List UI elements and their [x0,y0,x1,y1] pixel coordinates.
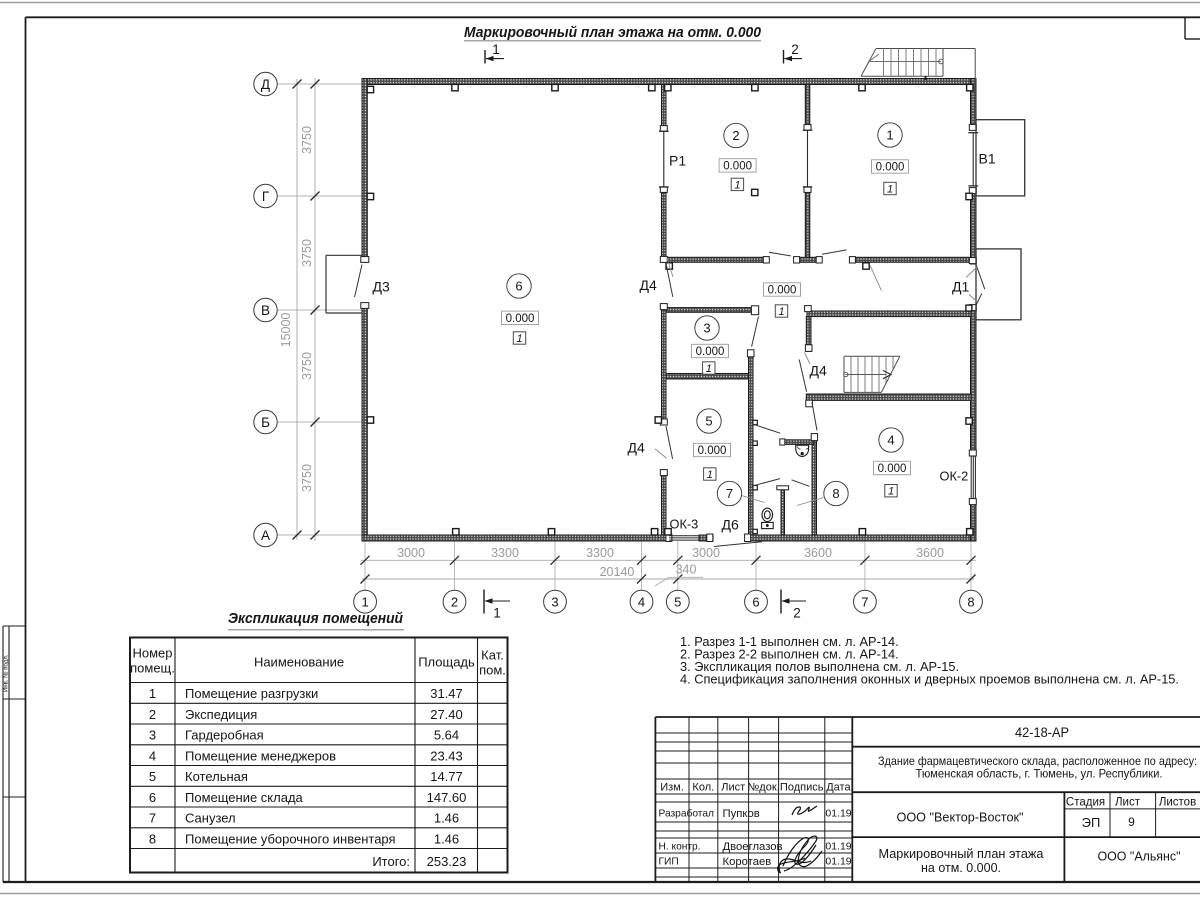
svg-text:3750: 3750 [300,239,314,267]
svg-text:Н. контр.: Н. контр. [659,842,701,853]
svg-text:2: 2 [732,128,739,143]
svg-text:5: 5 [149,769,156,784]
svg-text:Двоеглазов: Двоеглазов [723,841,783,853]
svg-text:Дата: Дата [826,782,851,794]
svg-text:7: 7 [726,486,733,501]
svg-text:1: 1 [492,42,500,57]
svg-text:ЭП: ЭП [1082,815,1101,830]
svg-text:7: 7 [149,811,156,826]
svg-text:3750: 3750 [300,126,314,154]
svg-text:Д4: Д4 [640,277,657,293]
svg-text:В1: В1 [979,151,996,167]
svg-text:Наименование: Наименование [254,655,344,670]
svg-text:0.000: 0.000 [698,445,727,457]
svg-text:0.000: 0.000 [696,346,725,358]
svg-text:Маркировочный план этажа: Маркировочный план этажа [879,846,1045,861]
svg-text:1: 1 [886,128,893,143]
svg-text:Гардеробная: Гардеробная [185,728,264,743]
svg-text:147.60: 147.60 [427,790,467,805]
svg-text:253.23: 253.23 [427,854,467,869]
svg-text:№док.: №док. [747,782,779,794]
svg-text:7: 7 [861,594,868,609]
svg-text:1: 1 [361,594,368,609]
svg-text:4: 4 [887,433,894,448]
svg-text:8: 8 [967,594,974,609]
svg-text:Номер: Номер [132,646,172,661]
svg-text:42-18-АР: 42-18-АР [1015,725,1069,740]
svg-text:Помещение уборочного инвентаря: Помещение уборочного инвентаря [185,831,396,846]
svg-text:1: 1 [493,606,501,621]
svg-text:3: 3 [703,321,710,336]
svg-text:Д3: Д3 [373,279,390,295]
svg-text:ГИП: ГИП [659,857,679,868]
svg-text:Изм.: Изм. [660,782,684,794]
svg-text:Лист: Лист [1115,797,1141,809]
svg-text:Лист: Лист [721,782,745,794]
svg-text:4: 4 [149,748,156,763]
svg-text:Тюменская область, г. Тюмень,: Тюменская область, г. Тюмень, ул. Респуб… [916,767,1163,781]
svg-text:3600: 3600 [804,546,832,560]
svg-text:31.47: 31.47 [430,686,463,701]
svg-text:Кол.: Кол. [692,782,714,794]
svg-text:23.43: 23.43 [430,748,463,763]
svg-text:ООО "Альянс": ООО "Альянс" [1098,849,1181,864]
svg-text:ОК-2: ОК-2 [940,469,969,484]
svg-text:3000: 3000 [397,546,425,560]
svg-text:9: 9 [1128,815,1135,829]
svg-text:1: 1 [149,686,156,701]
svg-text:3: 3 [551,594,558,609]
svg-text:2: 2 [791,42,799,57]
svg-text:01.19: 01.19 [825,808,851,820]
svg-text:Р1: Р1 [669,153,686,169]
svg-text:Д6: Д6 [722,517,739,533]
svg-text:8: 8 [832,486,839,501]
svg-text:2: 2 [793,606,801,621]
svg-text:20140: 20140 [600,565,635,579]
svg-text:Кат.: Кат. [481,648,504,663]
svg-text:1: 1 [887,184,893,196]
svg-text:Разработал: Разработал [659,808,715,820]
svg-text:Помещение менеджеров: Помещение менеджеров [185,748,336,763]
svg-text:ОК-3: ОК-3 [670,517,699,532]
svg-text:6: 6 [515,279,522,294]
svg-text:1: 1 [734,179,740,191]
svg-text:0.000: 0.000 [878,463,907,475]
svg-text:Пупков: Пупков [723,808,760,820]
svg-text:0.000: 0.000 [876,162,905,174]
svg-text:на отм. 0.000.: на отм. 0.000. [921,860,1001,875]
svg-text:5: 5 [705,414,712,429]
svg-text:1: 1 [707,469,713,481]
svg-text:Экспедиция: Экспедиция [185,707,257,722]
svg-text:5.64: 5.64 [434,728,459,743]
svg-text:15000: 15000 [279,313,293,348]
svg-text:4. Спецификация заполнения око: 4. Спецификация заполнения оконных и две… [680,672,1179,687]
svg-text:Д4: Д4 [628,440,645,456]
svg-text:2: 2 [149,707,156,722]
svg-text:Маркировочный план этажа на от: Маркировочный план этажа на отм. 0.000 [464,24,762,41]
svg-text:8: 8 [149,831,156,846]
svg-text:Д4: Д4 [810,363,827,379]
svg-text:Площадь: Площадь [418,655,475,670]
svg-text:ООО "Вектор-Восток": ООО "Вектор-Восток" [897,810,1024,825]
svg-text:помещ.: помещ. [130,661,175,676]
svg-text:0.000: 0.000 [768,285,797,297]
svg-text:01.19: 01.19 [825,841,851,853]
svg-text:Стадия: Стадия [1066,797,1105,809]
svg-text:Котельная: Котельная [185,769,248,784]
svg-text:Листов: Листов [1159,797,1196,809]
svg-text:1: 1 [516,333,522,345]
svg-text:В: В [261,303,270,318]
svg-text:Экспликация помещений: Экспликация помещений [228,610,403,627]
svg-text:Итого:: Итого: [372,854,410,869]
svg-text:3750: 3750 [300,464,314,492]
svg-text:27.40: 27.40 [430,707,463,722]
svg-text:2: 2 [451,594,458,609]
svg-text:Помещение склада: Помещение склада [185,790,304,805]
svg-text:14.77: 14.77 [430,769,463,784]
svg-text:6: 6 [149,790,156,805]
svg-text:6: 6 [752,594,759,609]
svg-text:1.46: 1.46 [434,831,459,846]
svg-text:Г: Г [262,189,270,204]
svg-text:Б: Б [261,415,270,430]
svg-text:3300: 3300 [491,546,519,560]
svg-text:3: 3 [149,728,156,743]
svg-text:5: 5 [674,594,681,609]
svg-text:0.000: 0.000 [723,161,752,173]
svg-text:1: 1 [706,363,712,375]
svg-text:3000: 3000 [692,546,720,560]
svg-text:1: 1 [778,306,784,318]
svg-text:Инв. № подл.: Инв. № подл. [3,654,10,692]
svg-text:3750: 3750 [300,352,314,380]
svg-text:А: А [261,528,270,543]
svg-text:4: 4 [638,594,645,609]
svg-text:3600: 3600 [916,546,944,560]
svg-text:340: 340 [676,563,697,577]
svg-text:Подпись: Подпись [780,782,824,794]
svg-text:3300: 3300 [586,546,614,560]
svg-text:Д1: Д1 [952,279,969,295]
svg-text:1: 1 [888,486,894,498]
svg-text:01.19: 01.19 [825,856,851,868]
svg-text:0.000: 0.000 [506,313,535,325]
svg-text:Коротаев: Коротаев [723,856,772,868]
svg-text:Помещение разгрузки: Помещение разгрузки [185,686,318,701]
svg-text:пом.: пом. [479,663,506,678]
svg-text:1.46: 1.46 [434,811,459,826]
svg-text:Санузел: Санузел [185,811,236,826]
svg-text:Д: Д [261,77,270,92]
